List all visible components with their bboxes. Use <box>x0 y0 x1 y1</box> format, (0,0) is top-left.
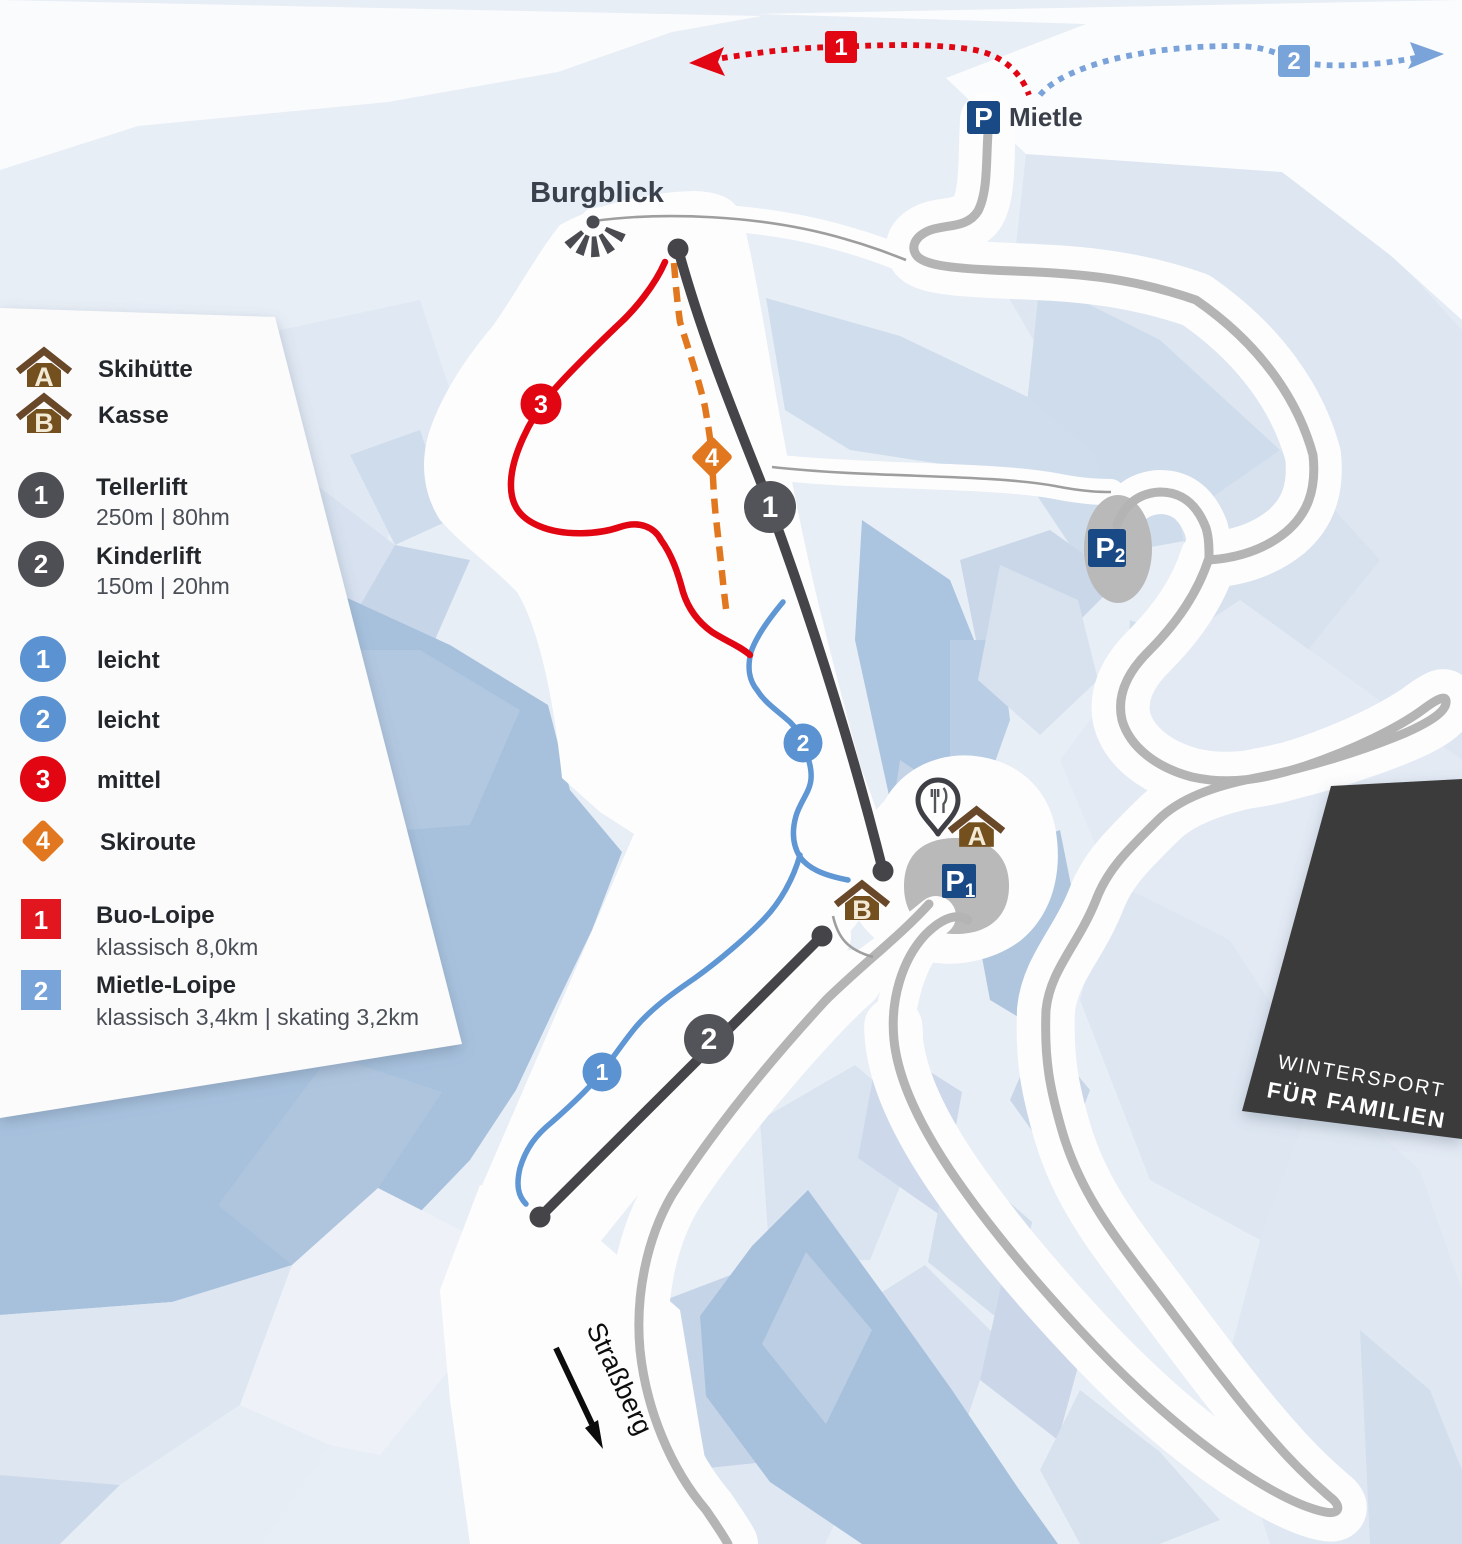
svg-text:250m | 80hm: 250m | 80hm <box>96 504 230 530</box>
svg-text:A: A <box>968 821 987 851</box>
svg-text:Kasse: Kasse <box>98 402 169 429</box>
svg-text:2: 2 <box>36 704 50 734</box>
svg-text:mittel: mittel <box>97 767 161 794</box>
svg-text:Tellerlift: Tellerlift <box>96 474 188 501</box>
svg-text:Mietle: Mietle <box>1009 102 1083 132</box>
svg-text:klassisch 3,4km | skating 3,2k: klassisch 3,4km | skating 3,2km <box>96 1004 419 1030</box>
svg-text:B: B <box>34 408 54 438</box>
svg-text:P: P <box>1095 533 1114 565</box>
svg-text:3: 3 <box>534 391 548 419</box>
svg-text:2: 2 <box>34 549 48 579</box>
svg-text:Buo-Loipe: Buo-Loipe <box>96 902 215 929</box>
svg-text:1: 1 <box>762 491 779 524</box>
svg-text:Burgblick: Burgblick <box>530 177 665 209</box>
svg-text:3: 3 <box>36 764 50 794</box>
svg-text:P: P <box>974 102 993 133</box>
svg-text:Skiroute: Skiroute <box>100 829 196 856</box>
svg-text:2: 2 <box>34 976 48 1006</box>
svg-text:1: 1 <box>34 905 48 935</box>
svg-text:klassisch 8,0km: klassisch 8,0km <box>96 934 258 960</box>
svg-text:A: A <box>34 362 54 392</box>
svg-text:1: 1 <box>36 644 50 674</box>
svg-text:2: 2 <box>1287 48 1300 75</box>
svg-text:1: 1 <box>965 881 976 902</box>
svg-text:leicht: leicht <box>97 647 160 674</box>
svg-text:P: P <box>945 866 964 898</box>
svg-text:150m | 20hm: 150m | 20hm <box>96 573 230 599</box>
svg-text:Skihütte: Skihütte <box>98 356 193 383</box>
svg-text:1: 1 <box>834 34 847 61</box>
svg-text:4: 4 <box>36 827 50 855</box>
svg-text:2: 2 <box>1115 546 1126 567</box>
svg-text:2: 2 <box>701 1023 718 1056</box>
svg-text:1: 1 <box>34 480 48 510</box>
svg-text:4: 4 <box>705 444 719 472</box>
svg-text:leicht: leicht <box>97 707 160 734</box>
svg-text:B: B <box>852 895 872 925</box>
svg-text:1: 1 <box>596 1059 609 1085</box>
svg-text:Mietle-Loipe: Mietle-Loipe <box>96 972 236 999</box>
svg-text:Kinderlift: Kinderlift <box>96 543 201 570</box>
svg-text:2: 2 <box>797 730 810 756</box>
